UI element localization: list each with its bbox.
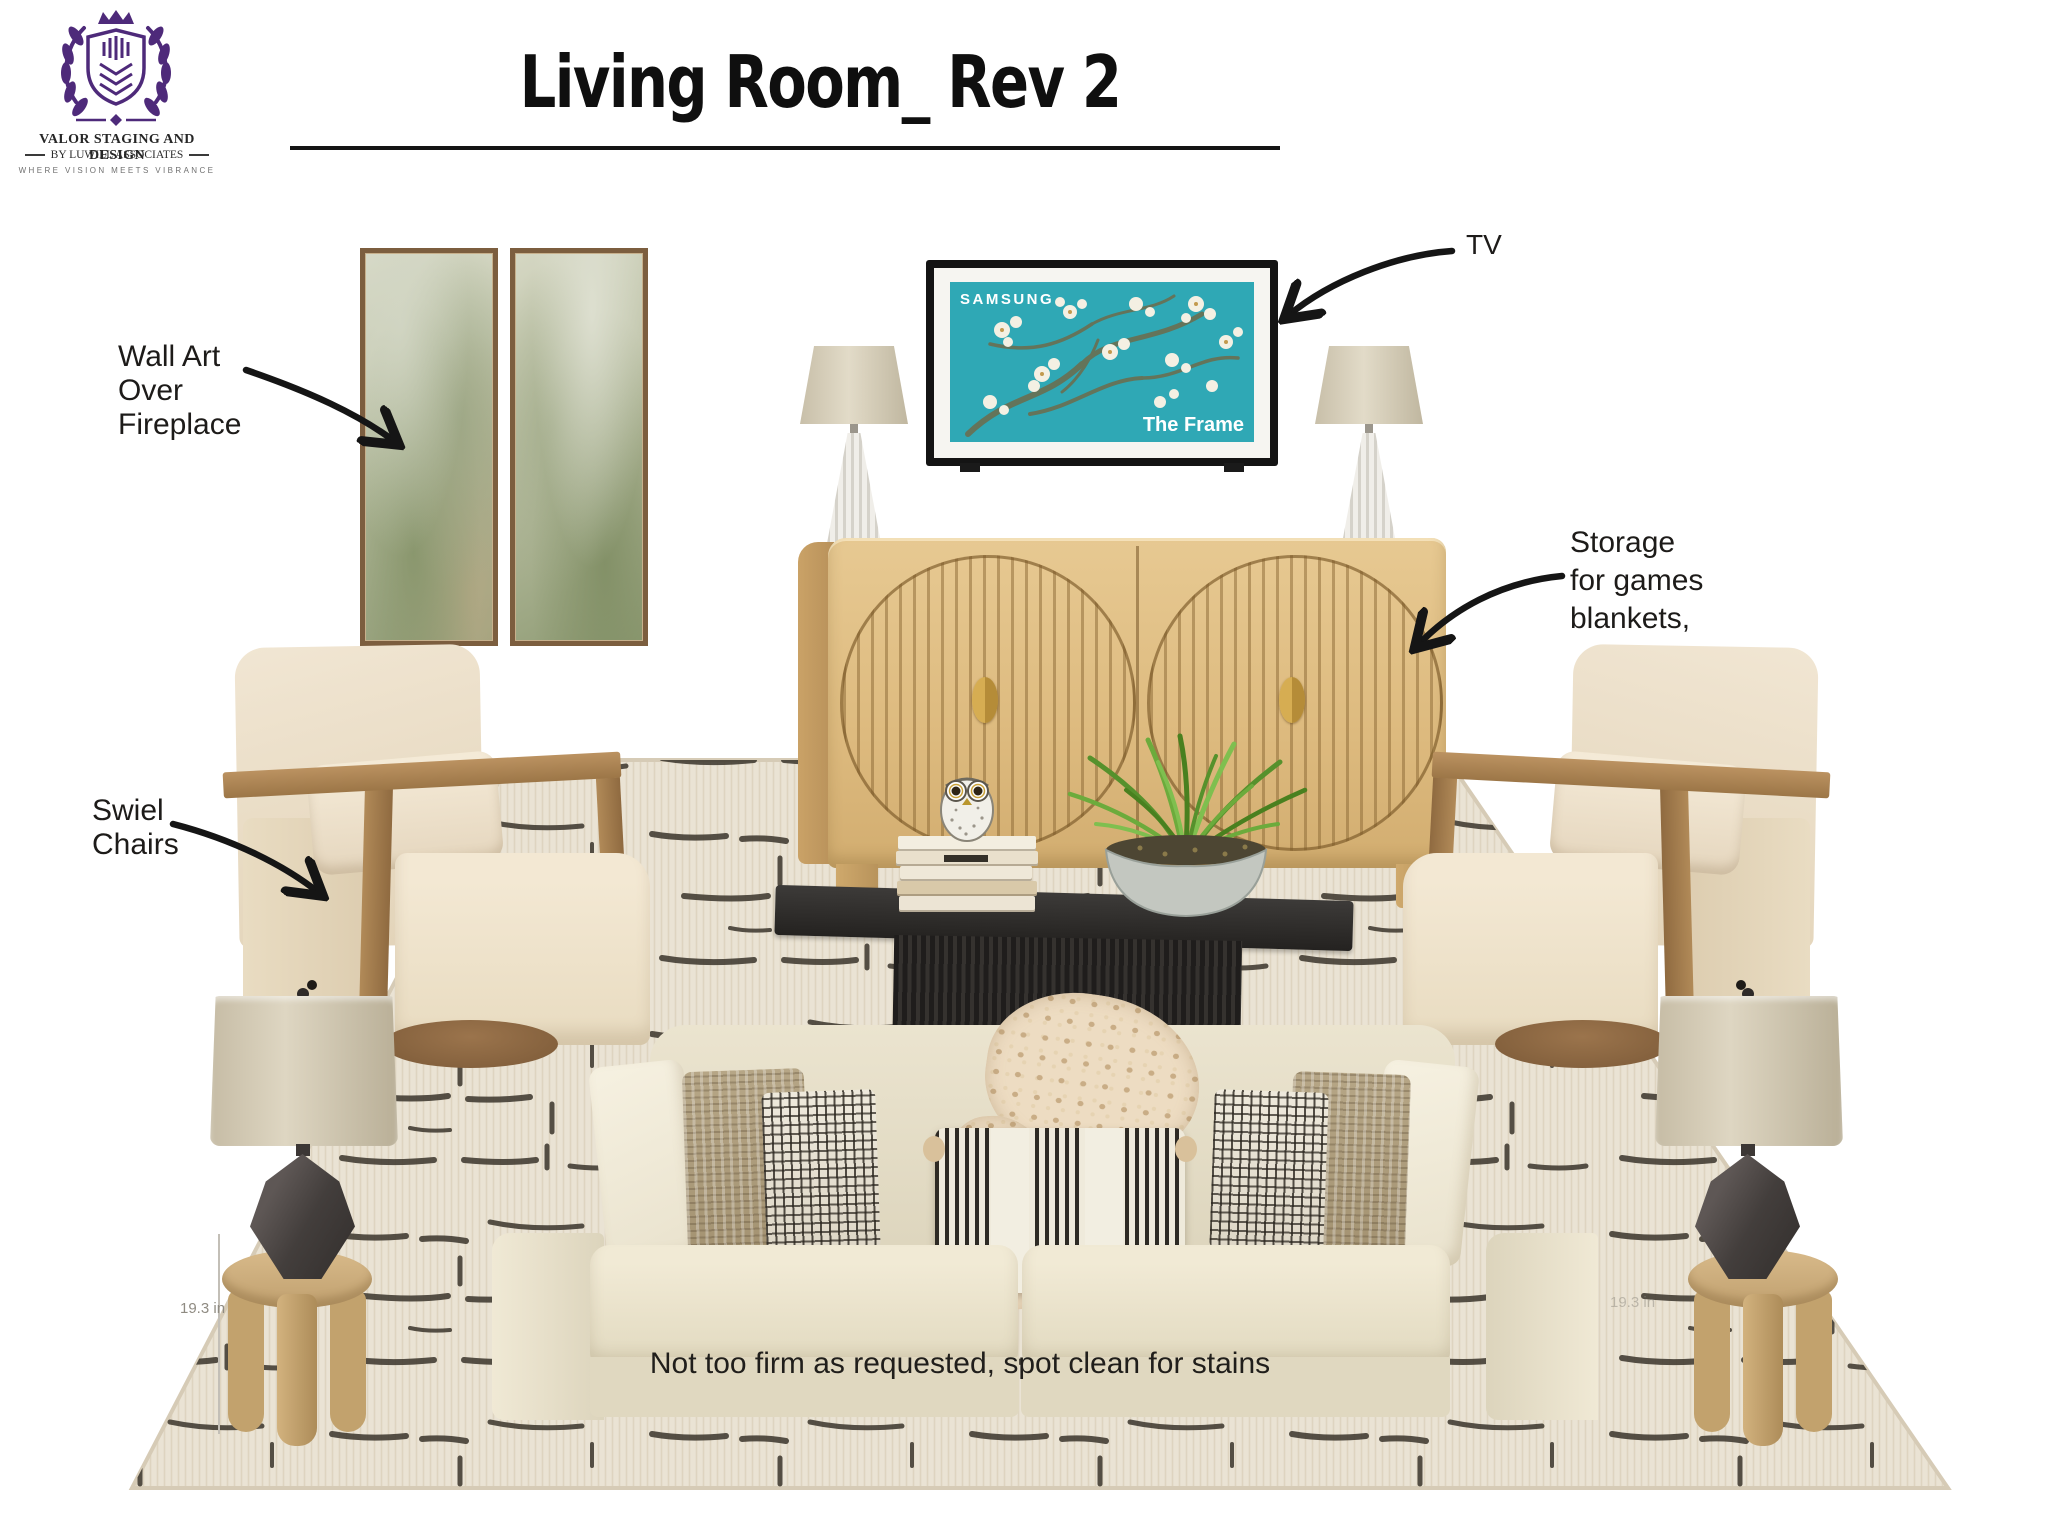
buffet-lamp-right bbox=[1315, 340, 1423, 555]
lamp-shade bbox=[210, 996, 398, 1146]
lamp-neck bbox=[850, 424, 858, 434]
sofa-arm-left bbox=[492, 1233, 604, 1420]
tassel bbox=[1175, 1136, 1197, 1162]
lamp-shade bbox=[1315, 346, 1423, 424]
table-lamp-right bbox=[1650, 988, 1845, 1288]
chair-arm-post-front bbox=[596, 777, 624, 858]
chair-arm-post-front bbox=[1429, 777, 1457, 858]
chair-seat-cushion bbox=[1403, 853, 1658, 1045]
callout-line: for games bbox=[1570, 562, 1703, 600]
lamp-shade bbox=[1655, 996, 1843, 1146]
frame-tv: SAMSUNG The Frame bbox=[926, 260, 1278, 466]
pillow-check-right bbox=[1209, 1089, 1329, 1253]
dimension-label-right: 19.3 in bbox=[1610, 1294, 1655, 1311]
book-stack bbox=[896, 836, 1038, 912]
grass-plant bbox=[1030, 728, 1340, 923]
dimension-line bbox=[218, 1234, 220, 1434]
lamp-base bbox=[250, 1154, 355, 1279]
callout-line: Fireplace bbox=[118, 408, 241, 442]
callout-line: Swiel bbox=[92, 794, 179, 828]
title-underline bbox=[290, 146, 1280, 150]
cabinet-handle-left bbox=[972, 677, 998, 723]
callout-line: blankets, bbox=[1570, 600, 1703, 638]
callout-tv: TV bbox=[1466, 228, 1502, 262]
tv-model-label: The Frame bbox=[1143, 414, 1244, 437]
table-leg-front bbox=[1743, 1294, 1783, 1446]
table-leg bbox=[1694, 1290, 1730, 1432]
lamp-base bbox=[1695, 1154, 1800, 1279]
book bbox=[897, 881, 1037, 896]
sofa: Not too firm as requested, spot clean fo… bbox=[490, 1025, 1600, 1420]
callout-wall-art: Wall Art Over Fireplace bbox=[118, 340, 241, 442]
tv-foot-left bbox=[960, 463, 980, 472]
brand-logo: VALOR STAGING AND DESIGN BY LUWILL ASSOC… bbox=[10, 8, 224, 178]
book-label bbox=[944, 855, 988, 862]
dash-left bbox=[25, 154, 45, 156]
sofa-arm-right bbox=[1486, 1233, 1598, 1420]
staging-design-board: VALOR STAGING AND DESIGN BY LUWILL ASSOC… bbox=[0, 0, 2048, 1536]
cabinet-handle-right bbox=[1279, 677, 1305, 723]
chair-arm-post bbox=[1660, 788, 1694, 1014]
pillow-check-left bbox=[761, 1089, 881, 1253]
buffet-lamp-left bbox=[800, 340, 908, 555]
chair-seat-cushion bbox=[395, 853, 650, 1045]
dash-right bbox=[189, 154, 209, 156]
page-title: Living Room_ Rev 2 bbox=[420, 40, 1220, 124]
lamp-shade bbox=[800, 346, 908, 424]
chair-arm-post bbox=[359, 788, 393, 1014]
table-leg-front bbox=[277, 1294, 317, 1446]
book bbox=[899, 896, 1035, 912]
callout-line: Over bbox=[118, 374, 241, 408]
table-leg bbox=[1796, 1290, 1832, 1432]
table-leg bbox=[228, 1290, 264, 1432]
brand-subname-text: BY LUWILL ASSOCIATES bbox=[51, 149, 184, 161]
book bbox=[896, 851, 1038, 866]
samsung-logo: SAMSUNG bbox=[960, 291, 1054, 308]
callout-line: Storage bbox=[1570, 524, 1703, 562]
callout-line: Wall Art bbox=[118, 340, 241, 374]
callout-storage: Storage for games blankets, bbox=[1570, 524, 1703, 638]
lamp-base bbox=[822, 433, 886, 553]
brand-tagline: WHERE VISION MEETS VIBRANCE bbox=[10, 166, 224, 175]
callout-line: Chairs bbox=[92, 828, 179, 862]
dimension-label-left: 19.3 in bbox=[180, 1300, 225, 1317]
owl-figurine bbox=[936, 764, 998, 842]
sofa-note: Not too firm as requested, spot clean fo… bbox=[640, 1347, 1280, 1381]
lamp-neck bbox=[1365, 424, 1373, 434]
wall-art-panel-left bbox=[360, 248, 498, 646]
tv-screen: SAMSUNG The Frame bbox=[950, 282, 1254, 442]
book bbox=[900, 866, 1032, 881]
callout-swivel-chairs: Swiel Chairs bbox=[92, 794, 179, 862]
lamp-neck bbox=[296, 1144, 310, 1156]
tv-foot-right bbox=[1224, 463, 1244, 472]
table-lamp-left bbox=[205, 988, 400, 1288]
valor-crest-icon bbox=[46, 8, 186, 130]
lamp-base bbox=[1337, 433, 1401, 553]
lamp-neck bbox=[1741, 1144, 1755, 1156]
tassel bbox=[923, 1136, 945, 1162]
brand-subname: BY LUWILL ASSOCIATES bbox=[10, 149, 224, 161]
table-leg bbox=[330, 1290, 366, 1432]
wall-art-panel-right bbox=[510, 248, 648, 646]
